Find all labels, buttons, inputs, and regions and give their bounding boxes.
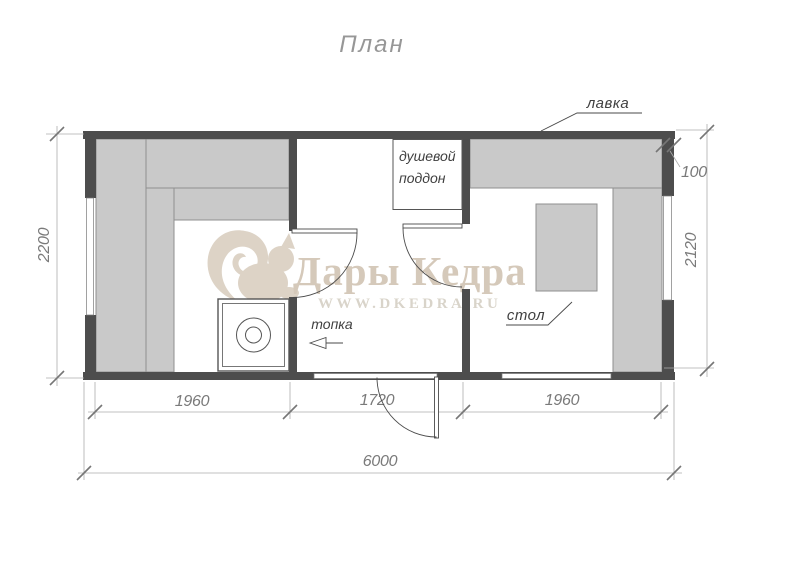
shower-tray-label-line1: душевой — [399, 148, 456, 164]
steam-room-door-leaf — [292, 229, 357, 233]
floor-plan-page: Дары Кедра WWW.DKEDRA.RU План — [0, 0, 800, 565]
left-wall-upper — [85, 139, 96, 198]
shower-tray-label-line2: поддон — [399, 170, 446, 186]
dim-span-left: 1960 — [175, 393, 210, 410]
dim-wall-thickness: 100 — [681, 164, 707, 181]
stove — [218, 299, 289, 371]
dim-total-length: 6000 — [363, 453, 398, 470]
rest-room-door-leaf — [403, 224, 462, 228]
right-wall-window — [664, 196, 672, 300]
bottom-wall-window — [502, 374, 611, 379]
squirrel-icon — [208, 230, 299, 303]
bench-label: лавка — [586, 95, 630, 112]
page-title: План — [339, 31, 404, 58]
stove-outer-frame — [218, 299, 289, 371]
rest-room-top-bench — [470, 139, 662, 188]
rest-room-table — [536, 204, 597, 291]
partition-shower-rest-lower — [462, 289, 470, 372]
steam-room-left-bench — [96, 139, 146, 372]
steam-room-top-bench-tier2 — [174, 188, 289, 220]
partition-steam-shower-lower — [289, 297, 297, 372]
entrance-door-leaf — [435, 377, 439, 438]
shower-tray: душевой поддон — [393, 140, 462, 210]
rest-room-right-bench — [613, 188, 662, 372]
dim-span-middle: 1720 — [360, 392, 395, 409]
dim-right-height: 2120 — [683, 232, 700, 268]
partition-steam-shower-upper — [289, 139, 297, 231]
top-wall — [83, 131, 675, 139]
firebox-arrow-icon — [310, 338, 343, 349]
floor-plan-drawing: Дары Кедра WWW.DKEDRA.RU План — [0, 0, 800, 565]
dim-left-height: 2200 — [36, 227, 53, 263]
partition-shower-rest-upper — [462, 139, 470, 224]
right-wall-lower — [662, 300, 674, 372]
watermark-site: WWW.DKEDRA.RU — [318, 296, 501, 312]
firebox-label: топка — [311, 316, 353, 332]
entrance-threshold — [314, 374, 437, 379]
left-wall-lower — [85, 315, 96, 372]
dim-span-right: 1960 — [545, 392, 580, 409]
bench-leader — [541, 113, 642, 131]
left-wall-window — [87, 198, 94, 315]
steam-room-top-bench-tier1 — [146, 139, 289, 188]
table-label: стол — [507, 307, 545, 324]
